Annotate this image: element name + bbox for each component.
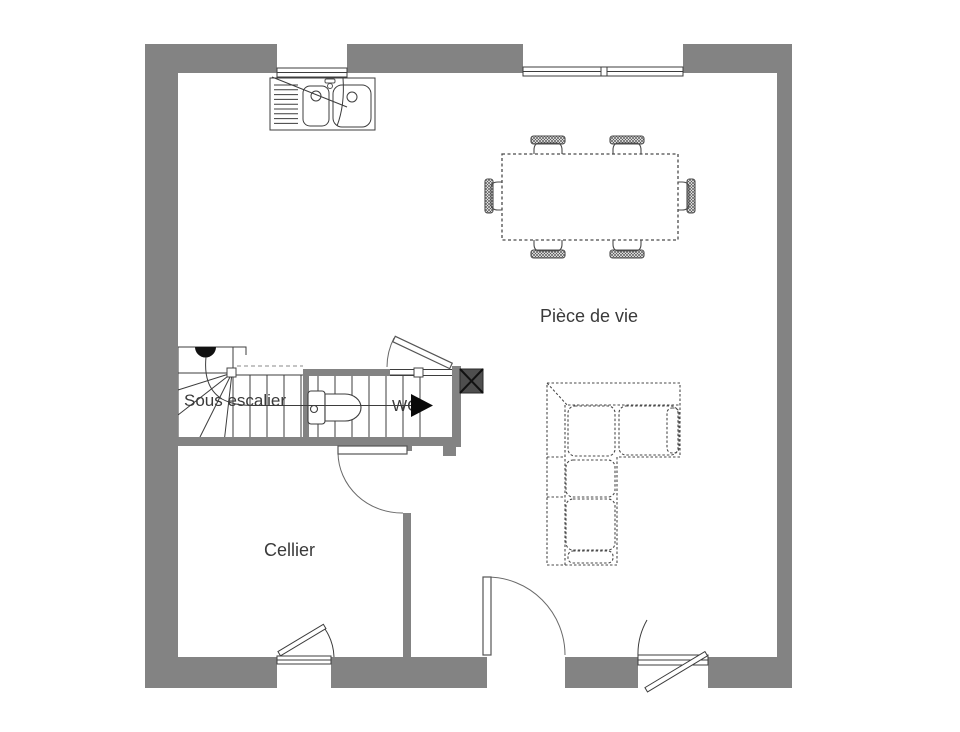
cellier-door [338, 446, 407, 513]
newel-post [414, 368, 423, 377]
wc-top-wall [303, 369, 390, 376]
chair [485, 179, 503, 213]
flush-button [311, 406, 318, 413]
door-swing-arc [338, 453, 403, 513]
right-wall [777, 44, 792, 688]
kitchen-sink [270, 78, 375, 130]
room-label-under-stairs: Sous escalier [184, 391, 286, 410]
room-label-living: Pièce de vie [540, 306, 638, 326]
sofa [547, 383, 680, 565]
duct-x-marker [460, 369, 483, 393]
top-wall-segment [347, 44, 523, 73]
casement-arc [325, 629, 334, 657]
window-living-top [523, 67, 683, 76]
casement-leaf [278, 624, 326, 656]
bottom-wall-segment [331, 657, 487, 688]
top-wall-segment [683, 44, 792, 73]
chair [610, 239, 644, 258]
cellier-right-wall [403, 513, 411, 657]
chair [531, 136, 565, 155]
door-leaf [393, 336, 453, 368]
stair-bottom-wall [178, 437, 461, 446]
chair [677, 179, 695, 213]
door-leaf [483, 577, 491, 655]
window-cellier [277, 624, 334, 664]
bottom-wall-segment [145, 657, 277, 688]
toilet [308, 391, 361, 424]
left-wall [145, 44, 178, 688]
chair [610, 136, 644, 155]
stair-start-marker [195, 347, 216, 358]
floor-plan: Pièce de vie Cellier Sous escalier WC [0, 0, 960, 732]
walk-line-arrow [411, 394, 433, 417]
bottom-wall-segment [708, 657, 792, 688]
floor-plan-drawing: Pièce de vie Cellier Sous escalier WC [0, 0, 960, 732]
chair [531, 239, 565, 258]
casement-arc [638, 620, 647, 657]
room-label-cellar: Cellier [264, 540, 315, 560]
newel-post [227, 368, 236, 377]
door-leaf [338, 446, 407, 454]
toilet-bowl [325, 394, 361, 421]
window-mullion [601, 67, 607, 76]
door-swing-arc [487, 577, 565, 655]
window-living-bottom [638, 620, 708, 692]
wc-door [387, 336, 452, 368]
dining-table [502, 154, 678, 240]
entrance-door [483, 577, 565, 655]
wall-corner-block [443, 444, 456, 456]
bottom-wall-segment [565, 657, 638, 688]
outer-walls [145, 44, 792, 688]
